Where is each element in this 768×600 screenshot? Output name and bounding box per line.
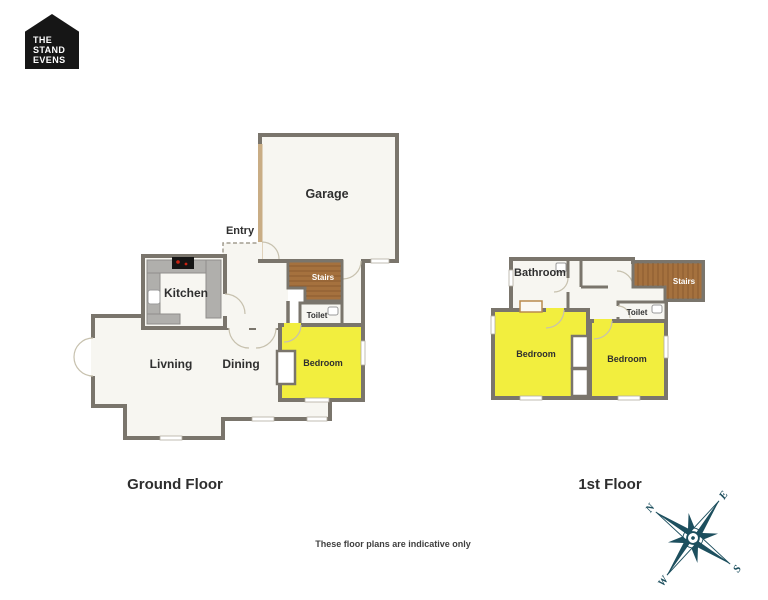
window-bedroom-right-bottom	[618, 396, 640, 400]
window-bathroom	[509, 270, 513, 286]
label-kitchen: Kitchen	[164, 286, 208, 300]
label-dining: Dining	[222, 357, 259, 371]
door-gap-toilet-first	[616, 306, 620, 317]
window-bedroom-left-bottom	[520, 396, 542, 400]
garage-tan-wall	[258, 144, 263, 259]
window-dining-bottom-2	[307, 417, 327, 421]
compass-rose: N E S W	[634, 479, 752, 597]
door-gap-french	[91, 338, 95, 376]
door-arc-french-1	[74, 338, 93, 357]
window-bedroom-right-wall	[664, 336, 668, 358]
window-bedroom-g-bottom	[305, 398, 329, 402]
toilet-icon-ground	[328, 307, 338, 315]
ground-floor-plan: Garage Entry Kitchen Stairs Toilet Bedro…	[65, 128, 405, 446]
label-bathroom: Bathroom	[514, 267, 566, 279]
door-gap-bedroom-g	[284, 323, 301, 327]
door-gap-bedroom-right	[594, 319, 612, 323]
compass-south-label: S	[731, 563, 744, 575]
window-living-bottom	[160, 436, 182, 440]
door-gap-garage	[343, 259, 361, 263]
label-entry: Entry	[226, 225, 255, 237]
label-stairs-first: Stairs	[673, 277, 696, 286]
window-bedroom-left-wall	[491, 316, 495, 334]
room-hall	[225, 256, 288, 328]
agency-logo-house: THE STAND EVENS	[25, 14, 79, 69]
toilet-icon-first	[652, 305, 662, 313]
label-toilet-first: Toilet	[627, 308, 648, 317]
door-gap-dining-1	[229, 326, 249, 330]
entry-zone	[223, 243, 259, 259]
label-bedroom-right: Bedroom	[607, 354, 647, 364]
stove-burner-icon	[185, 263, 188, 266]
label-bedroom-ground: Bedroom	[303, 358, 343, 368]
compass-group: N E S W	[634, 479, 752, 597]
stove-icon	[172, 257, 194, 269]
door-gap-kitchen	[223, 294, 227, 316]
room-corridor	[342, 261, 363, 325]
closet-first-1	[572, 336, 588, 368]
window-dining-bottom-1	[252, 417, 274, 421]
compass-north-label: N	[643, 501, 659, 516]
ground-floor-title: Ground Floor	[95, 476, 255, 493]
first-floor-plan: Bathroom Stairs Toilet Bedroom Bedroom	[486, 250, 710, 404]
closet-first-2	[572, 369, 588, 396]
label-bedroom-left: Bedroom	[516, 349, 556, 359]
kitchen-counter-bottom	[147, 314, 180, 324]
door-gap-bedroom-left	[546, 308, 564, 312]
door-gap-dining-2	[256, 326, 276, 330]
compass-west-label: W	[656, 573, 672, 589]
label-garage: Garage	[305, 187, 348, 201]
sink-icon	[148, 290, 160, 304]
stove-burner-icon	[176, 260, 180, 264]
label-toilet-ground: Toilet	[307, 311, 328, 320]
window-bedroom-g-right	[361, 341, 365, 365]
window-garage	[371, 259, 389, 263]
vanity-icon	[520, 301, 542, 312]
door-arc-french-2	[74, 357, 93, 376]
logo-line-3: EVENS	[33, 56, 66, 66]
label-living: Livning	[150, 357, 193, 371]
label-stairs-ground: Stairs	[312, 273, 335, 282]
closet-ground	[277, 351, 295, 384]
agency-logo-text: THE STAND EVENS	[33, 36, 66, 66]
disclaimer-text: These floor plans are indicative only	[288, 539, 498, 549]
kitchen-counter-right	[206, 260, 221, 318]
floor-plan-page: THE STAND EVENS	[0, 0, 768, 600]
compass-east-label: E	[716, 489, 731, 503]
